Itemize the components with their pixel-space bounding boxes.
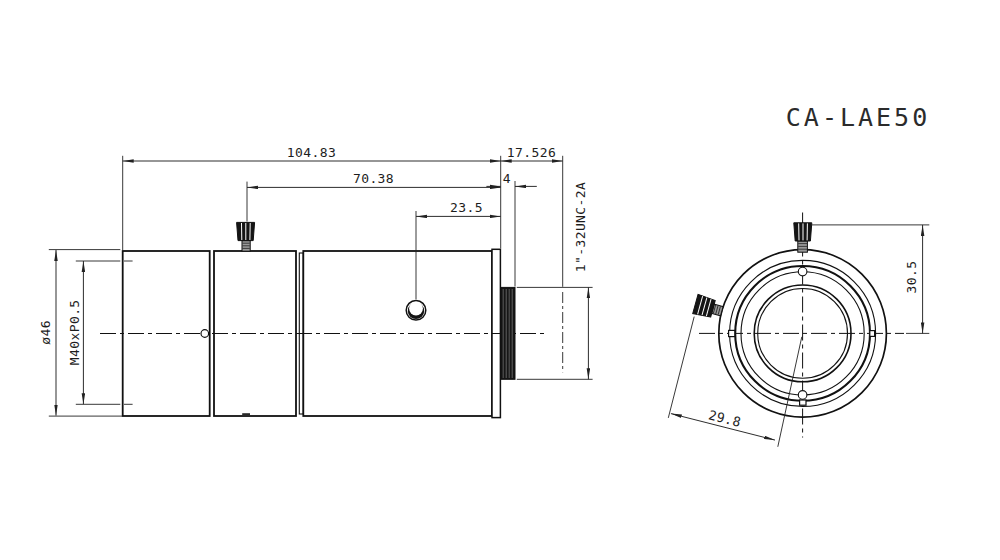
dim-overall-length-label: 104.83: [287, 145, 336, 160]
page-title: CA-LAE50: [786, 103, 930, 132]
dim-outer-diameter-label: ø46: [38, 320, 53, 345]
dim-flange-focal-label: 17.526: [507, 145, 556, 160]
dim-screw-to-flange-label: 70.38: [353, 171, 394, 186]
dim-screw-offset-label: 29.8: [707, 407, 743, 430]
ring-notch-left: [729, 330, 735, 336]
bottom-screw-mark: [242, 413, 250, 416]
front-thumbscrew-top: [794, 223, 812, 252]
ext-line: [668, 317, 694, 418]
dim-mount-thread-label: 1"-32UNC-2A: [573, 182, 588, 273]
ring-notch-right: [870, 331, 875, 337]
drawing-sheet: 104.83 17.526 70.38 4 23.5 ø46 M40xP0.5 …: [0, 0, 1000, 560]
dim-hole-to-flange-label: 23.5: [450, 200, 483, 215]
barrel-hole: [406, 301, 426, 321]
dim-rear-thread-label: M40xP0.5: [67, 299, 82, 365]
ring-notch-bottom: [800, 400, 806, 405]
cmount-thread: [501, 287, 515, 379]
screw-hole-top: [798, 267, 807, 276]
screw-hole-bottom: [798, 391, 807, 400]
dim-thread-length-label: 4: [503, 171, 511, 186]
side-thumbscrew: [237, 222, 255, 251]
front-view: 30.5 29.8: [668, 213, 929, 447]
set-screw-icon: [201, 330, 209, 338]
drawing-canvas: 104.83 17.526 70.38 4 23.5 ø46 M40xP0.5 …: [0, 0, 1000, 560]
dim-screw-height-label: 30.5: [904, 261, 919, 294]
side-view: 104.83 17.526 70.38 4 23.5 ø46 M40xP0.5 …: [38, 145, 593, 418]
